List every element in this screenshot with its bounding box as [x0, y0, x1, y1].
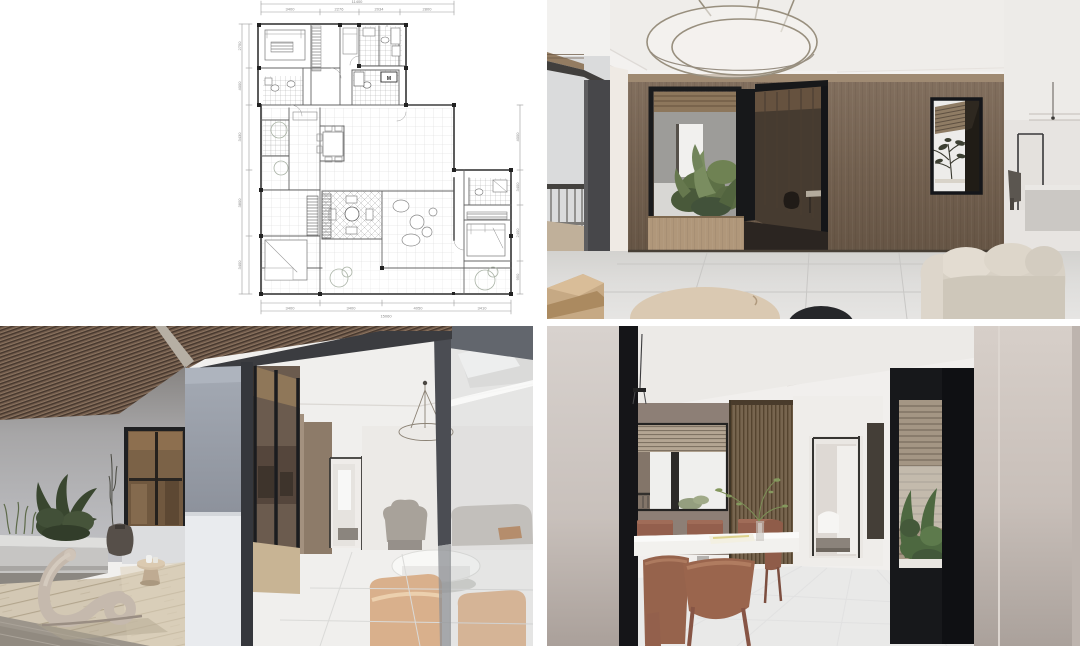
svg-text:11400: 11400 — [352, 0, 364, 4]
svg-text:M: M — [387, 76, 391, 82]
svg-text:4050: 4050 — [414, 306, 424, 311]
svg-text:2276: 2276 — [335, 7, 345, 12]
svg-text:3400: 3400 — [286, 7, 296, 12]
svg-text:3410: 3410 — [478, 306, 488, 311]
svg-text:3400: 3400 — [347, 306, 357, 311]
svg-text:4000: 4000 — [515, 132, 520, 142]
svg-text:3800: 3800 — [237, 198, 242, 208]
svg-text:3430: 3430 — [237, 132, 242, 142]
svg-text:3400: 3400 — [286, 306, 296, 311]
svg-text:2034: 2034 — [375, 7, 385, 12]
svg-text:2400: 2400 — [515, 228, 520, 238]
svg-text:950: 950 — [515, 273, 520, 280]
svg-text:4000: 4000 — [237, 81, 242, 91]
svg-text:15060: 15060 — [380, 314, 392, 319]
svg-text:2800: 2800 — [423, 7, 433, 12]
svg-text:2750: 2750 — [237, 41, 242, 51]
svg-text:3400: 3400 — [515, 182, 520, 192]
svg-text:3400: 3400 — [237, 260, 242, 270]
